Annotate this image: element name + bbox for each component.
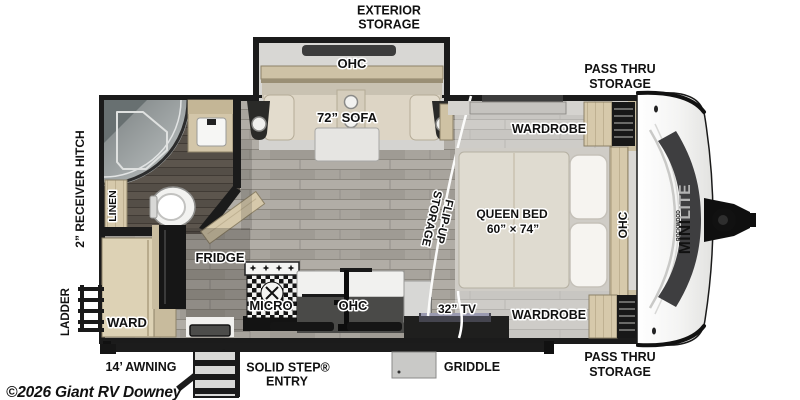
svg-text:MICRO: MICRO xyxy=(249,298,292,313)
svg-text:32” TV: 32” TV xyxy=(438,302,476,316)
svg-text:STORAGE: STORAGE xyxy=(589,365,651,379)
svg-text:ROCKWOOD: ROCKWOOD xyxy=(676,210,682,241)
svg-text:14’ AWNING: 14’ AWNING xyxy=(105,360,176,374)
svg-text:LADDER: LADDER xyxy=(60,287,72,336)
svg-text:EXTERIOR: EXTERIOR xyxy=(357,4,421,18)
svg-text:WARD: WARD xyxy=(107,315,147,330)
svg-text:FRIDGE: FRIDGE xyxy=(195,250,244,265)
svg-text:2” RECEIVER HITCH: 2” RECEIVER HITCH xyxy=(73,130,87,247)
svg-text:60” × 74”: 60” × 74” xyxy=(487,222,539,236)
svg-text:WARDROBE: WARDROBE xyxy=(512,308,586,322)
svg-text:OHC: OHC xyxy=(339,298,369,313)
svg-text:PASS THRU: PASS THRU xyxy=(584,350,655,364)
svg-text:©2026 Giant RV Downey: ©2026 Giant RV Downey xyxy=(6,384,183,400)
svg-text:QUEEN BED: QUEEN BED xyxy=(476,207,548,221)
svg-text:STORAGE: STORAGE xyxy=(589,77,651,91)
svg-text:PASS THRU: PASS THRU xyxy=(584,62,655,76)
svg-text:OHC: OHC xyxy=(338,56,368,71)
svg-text:STORAGE: STORAGE xyxy=(358,18,420,32)
svg-text:SOLID STEP®: SOLID STEP® xyxy=(246,361,330,375)
svg-text:LINEN: LINEN xyxy=(107,190,119,222)
svg-text:72” SOFA: 72” SOFA xyxy=(317,110,378,125)
svg-text:ENTRY: ENTRY xyxy=(266,375,309,389)
svg-text:GRIDDLE: GRIDDLE xyxy=(444,360,500,374)
svg-text:OHC: OHC xyxy=(616,211,630,238)
svg-text:WARDROBE: WARDROBE xyxy=(512,122,586,136)
